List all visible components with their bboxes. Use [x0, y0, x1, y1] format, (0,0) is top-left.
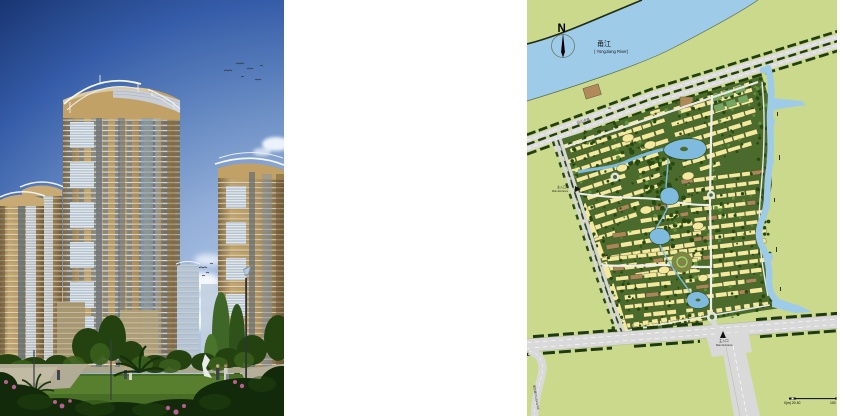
- svg-text:Main Entrance: Main Entrance: [716, 343, 733, 347]
- svg-text:N: N: [558, 23, 566, 35]
- svg-text:主入口: 主入口: [719, 338, 729, 343]
- svg-text:Main Entrance: Main Entrance: [552, 190, 569, 193]
- svg-text:100: 100: [830, 401, 836, 405]
- svg-text:甬江: 甬江: [597, 39, 611, 48]
- svg-text:0(m) 20 40: 0(m) 20 40: [784, 401, 801, 405]
- svg-text:( YongJiang River): ( YongJiang River): [594, 49, 629, 54]
- svg-text:主入口: 主入口: [557, 184, 566, 189]
